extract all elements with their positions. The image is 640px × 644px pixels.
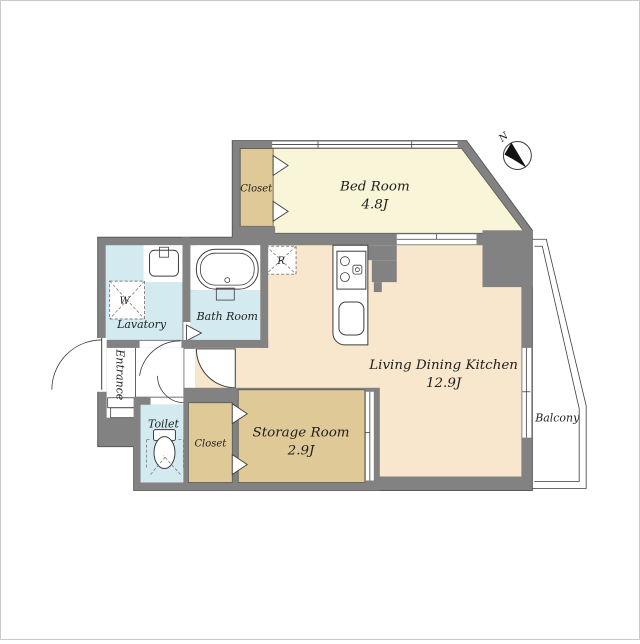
lavatory-door-opening: [140, 341, 182, 348]
ldk-window-opening: [522, 348, 531, 438]
kitchen-sink: [339, 302, 364, 335]
compass: N: [496, 130, 531, 169]
wet-row-bottom-wall: [98, 340, 268, 348]
corner-pillar-wall: [482, 230, 532, 287]
front-door-swing-arc: [52, 340, 102, 390]
floor-plan-canvas: R W: [0, 0, 640, 640]
ldk-label: Living Dining Kitchen: [368, 358, 518, 373]
ldk-window: [522, 348, 531, 438]
toilet-bowl: [154, 437, 175, 469]
closet-wall-stub: [239, 226, 275, 234]
kitchen-wall-step: [374, 282, 382, 292]
refrigerator-label: R: [276, 256, 285, 267]
washing-machine-label: W: [119, 296, 130, 307]
ldk-area: 12.9J: [426, 376, 462, 391]
kitchen-wall-step: [367, 245, 397, 260]
compass-north-label: N: [496, 130, 511, 145]
balcony-label: Balcony: [534, 412, 580, 425]
storage-label: Storage Room: [253, 426, 350, 441]
bedroom-window: [272, 142, 457, 148]
bathroom-wall-right: [260, 237, 268, 348]
bedroom-area: 4.8J: [360, 197, 388, 212]
compass-needle-icon: [504, 143, 526, 168]
ldk-door-opening: [184, 349, 195, 389]
refrigerator-space: R: [266, 246, 296, 274]
floor-plan-svg: R W: [1, 1, 639, 639]
toilet-label: Toilet: [148, 418, 180, 431]
lavatory-label: Lavatory: [116, 318, 167, 331]
balcony-outer-rail: [532, 239, 586, 488]
bedroom-closet-label: Closet: [240, 183, 273, 194]
bedroom-label: Bed Room: [339, 179, 410, 194]
hall-floor: [136, 348, 184, 397]
balcony: Balcony: [532, 239, 586, 488]
kitchen-wall-step: [372, 260, 397, 282]
toilet-door-opening: [151, 398, 184, 405]
entrance-label: Entrance: [114, 348, 127, 400]
hall-closet-label: Closet: [194, 439, 227, 450]
bathroom-label: Bath Room: [196, 310, 258, 323]
storage-area: 2.9J: [287, 444, 315, 459]
